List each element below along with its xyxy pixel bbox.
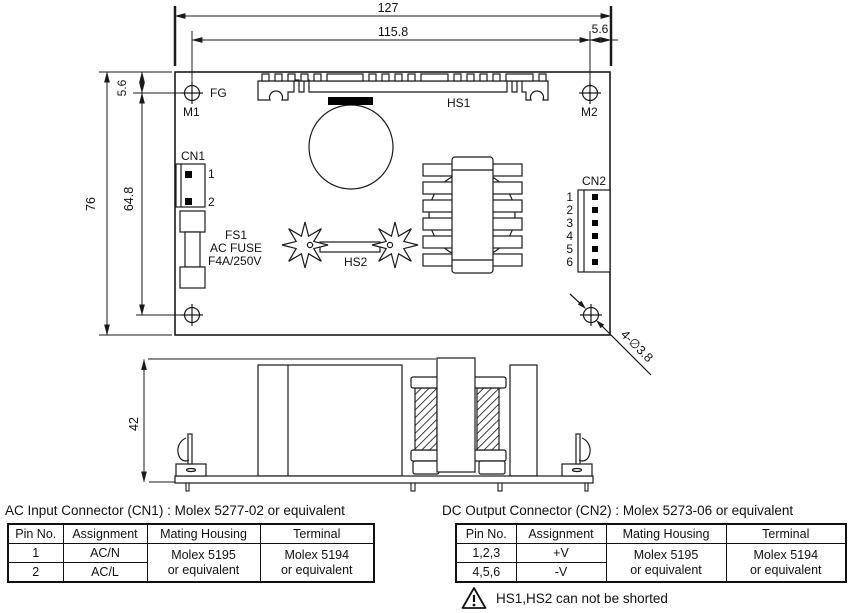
cn2-pin-label: 2 — [566, 203, 573, 217]
warning-text: HS1,HS2 can not be shorted — [496, 591, 668, 606]
transformer-core-column — [437, 358, 475, 472]
cn1-pin-1 — [185, 171, 192, 178]
col-header-terminal: Terminal — [260, 524, 374, 544]
cn2-pin — [592, 194, 598, 200]
fuse-rating-label: F4A/250V — [208, 254, 261, 268]
cn2-pin-label: 3 — [566, 216, 573, 230]
mating-housing-line2: or equivalent — [607, 563, 726, 577]
dc-table-title: DC Output Connector (CN2) : Molex 5273-0… — [442, 503, 847, 523]
col-header-pin-no: Pin No. — [456, 524, 516, 544]
assignment-cell: AC/L — [63, 563, 147, 583]
terminal-cell: Molex 5194 or equivalent — [260, 544, 374, 583]
dc-output-table: Pin No. Assignment Mating Housing Termin… — [455, 523, 847, 583]
pcb-outline — [175, 72, 610, 335]
side-view: 42 — [127, 358, 593, 491]
mating-housing-cell: Molex 5195 or equivalent — [606, 544, 726, 583]
cn2-pin — [592, 259, 598, 265]
m2-label: M2 — [581, 105, 598, 119]
col-header-terminal: Terminal — [726, 524, 846, 544]
mating-housing-line1: Molex 5195 — [607, 548, 726, 562]
cn1-pin-2 — [185, 198, 192, 205]
warning-triangle-icon — [461, 586, 487, 610]
fuse-type-label: AC FUSE — [210, 241, 262, 255]
col-header-assignment: Assignment — [516, 524, 606, 544]
col-header-pin-no: Pin No. — [8, 524, 63, 544]
board-pins — [186, 483, 588, 491]
terminal-line2: or equivalent — [261, 563, 374, 577]
fg-label: FG — [210, 86, 227, 100]
pin-cell: 2 — [8, 563, 63, 583]
transformer-side — [411, 358, 506, 474]
cn2-pin — [592, 220, 598, 226]
ac-input-table: Pin No. Assignment Mating Housing Termin… — [7, 523, 375, 583]
pin-cell: 1,2,3 — [456, 544, 516, 563]
assignment-cell: +V — [516, 544, 606, 563]
ac-input-section: AC Input Connector (CN1) : Molex 5277-02… — [5, 503, 375, 583]
fs1-label: FS1 — [225, 228, 247, 242]
component-side-right — [510, 365, 537, 476]
dimension-right-hole-offset: 5.6 — [590, 22, 618, 40]
cn2-label: CN2 — [582, 174, 606, 188]
pin-cell: 1 — [8, 544, 63, 563]
cn2-pin — [592, 207, 598, 213]
transformer-winding-left — [415, 388, 437, 450]
terminal-line1: Molex 5194 — [727, 548, 846, 562]
mounting-clip-right — [562, 434, 592, 476]
transformer-foot — [413, 461, 439, 474]
mating-housing-cell: Molex 5195 or equivalent — [147, 544, 260, 583]
cn1-pin-1-label: 1 — [208, 167, 215, 181]
col-header-mating-housing: Mating Housing — [147, 524, 260, 544]
table-header-row: Pin No. Assignment Mating Housing Termin… — [8, 524, 374, 544]
transformer-foot — [479, 461, 505, 474]
cn1-label: CN1 — [181, 149, 205, 163]
table-row: 1 AC/N Molex 5195 or equivalent Molex 51… — [8, 544, 374, 563]
terminal-cell: Molex 5194 or equivalent — [726, 544, 846, 583]
transformer-core-bar — [452, 157, 493, 273]
mounting-clip-left — [176, 434, 206, 476]
dim-42-label: 42 — [127, 417, 141, 431]
col-header-mating-housing: Mating Housing — [606, 524, 726, 544]
pin-cell: 4,5,6 — [456, 563, 516, 583]
dim-76-label: 76 — [84, 197, 98, 211]
dim-5-6-top-label: 5.6 — [592, 22, 609, 36]
warning-note: HS1,HS2 can not be shorted — [461, 586, 668, 610]
terminal-line2: or equivalent — [727, 563, 846, 577]
cn2-pin-label: 6 — [566, 255, 573, 269]
cn1-pin-2-label: 2 — [208, 195, 215, 209]
mechanical-drawing-page: 127 115.8 5.6 76 5.6 — [0, 0, 857, 613]
col-header-assignment: Assignment — [63, 524, 147, 544]
cn2-pin — [592, 233, 598, 239]
dim-64-8-label: 64.8 — [122, 187, 136, 211]
pcb-mechanical-drawing: 127 115.8 5.6 76 5.6 — [0, 0, 857, 500]
capacitor-side — [258, 365, 402, 476]
dc-output-section: DC Output Connector (CN2) : Molex 5273-0… — [442, 503, 847, 583]
m1-label: M1 — [183, 105, 200, 119]
cn2-pin-label: 1 — [566, 190, 573, 204]
hs2-label: HS2 — [344, 255, 368, 269]
transformer-winding-right — [477, 388, 499, 450]
cn2-pin — [592, 246, 598, 252]
assignment-cell: -V — [516, 563, 606, 583]
cn2-pin-label: 5 — [566, 242, 573, 256]
dim-5-6-left-label: 5.6 — [115, 79, 129, 96]
hs1-label: HS1 — [447, 96, 471, 110]
table-row: 1,2,3 +V Molex 5195 or equivalent Molex … — [456, 544, 846, 563]
assignment-cell: AC/N — [63, 544, 147, 563]
ac-table-title: AC Input Connector (CN1) : Molex 5277-02… — [5, 503, 375, 523]
transformer-top — [423, 157, 522, 273]
cn2-pin-label: 4 — [566, 229, 573, 243]
hole-callout-label: 4-∅3.8 — [618, 327, 656, 365]
table-header-row: Pin No. Assignment Mating Housing Termin… — [456, 524, 846, 544]
terminal-line1: Molex 5194 — [261, 548, 374, 562]
dim-127-label: 127 — [378, 1, 399, 15]
mating-housing-line2: or equivalent — [148, 563, 260, 577]
mating-housing-line1: Molex 5195 — [148, 548, 260, 562]
dim-115-8-label: 115.8 — [378, 25, 408, 39]
top-view: 127 115.8 5.6 76 5.6 — [84, 1, 656, 375]
pcb-board-side — [175, 476, 593, 483]
capacitor-vent-bar — [328, 97, 373, 105]
